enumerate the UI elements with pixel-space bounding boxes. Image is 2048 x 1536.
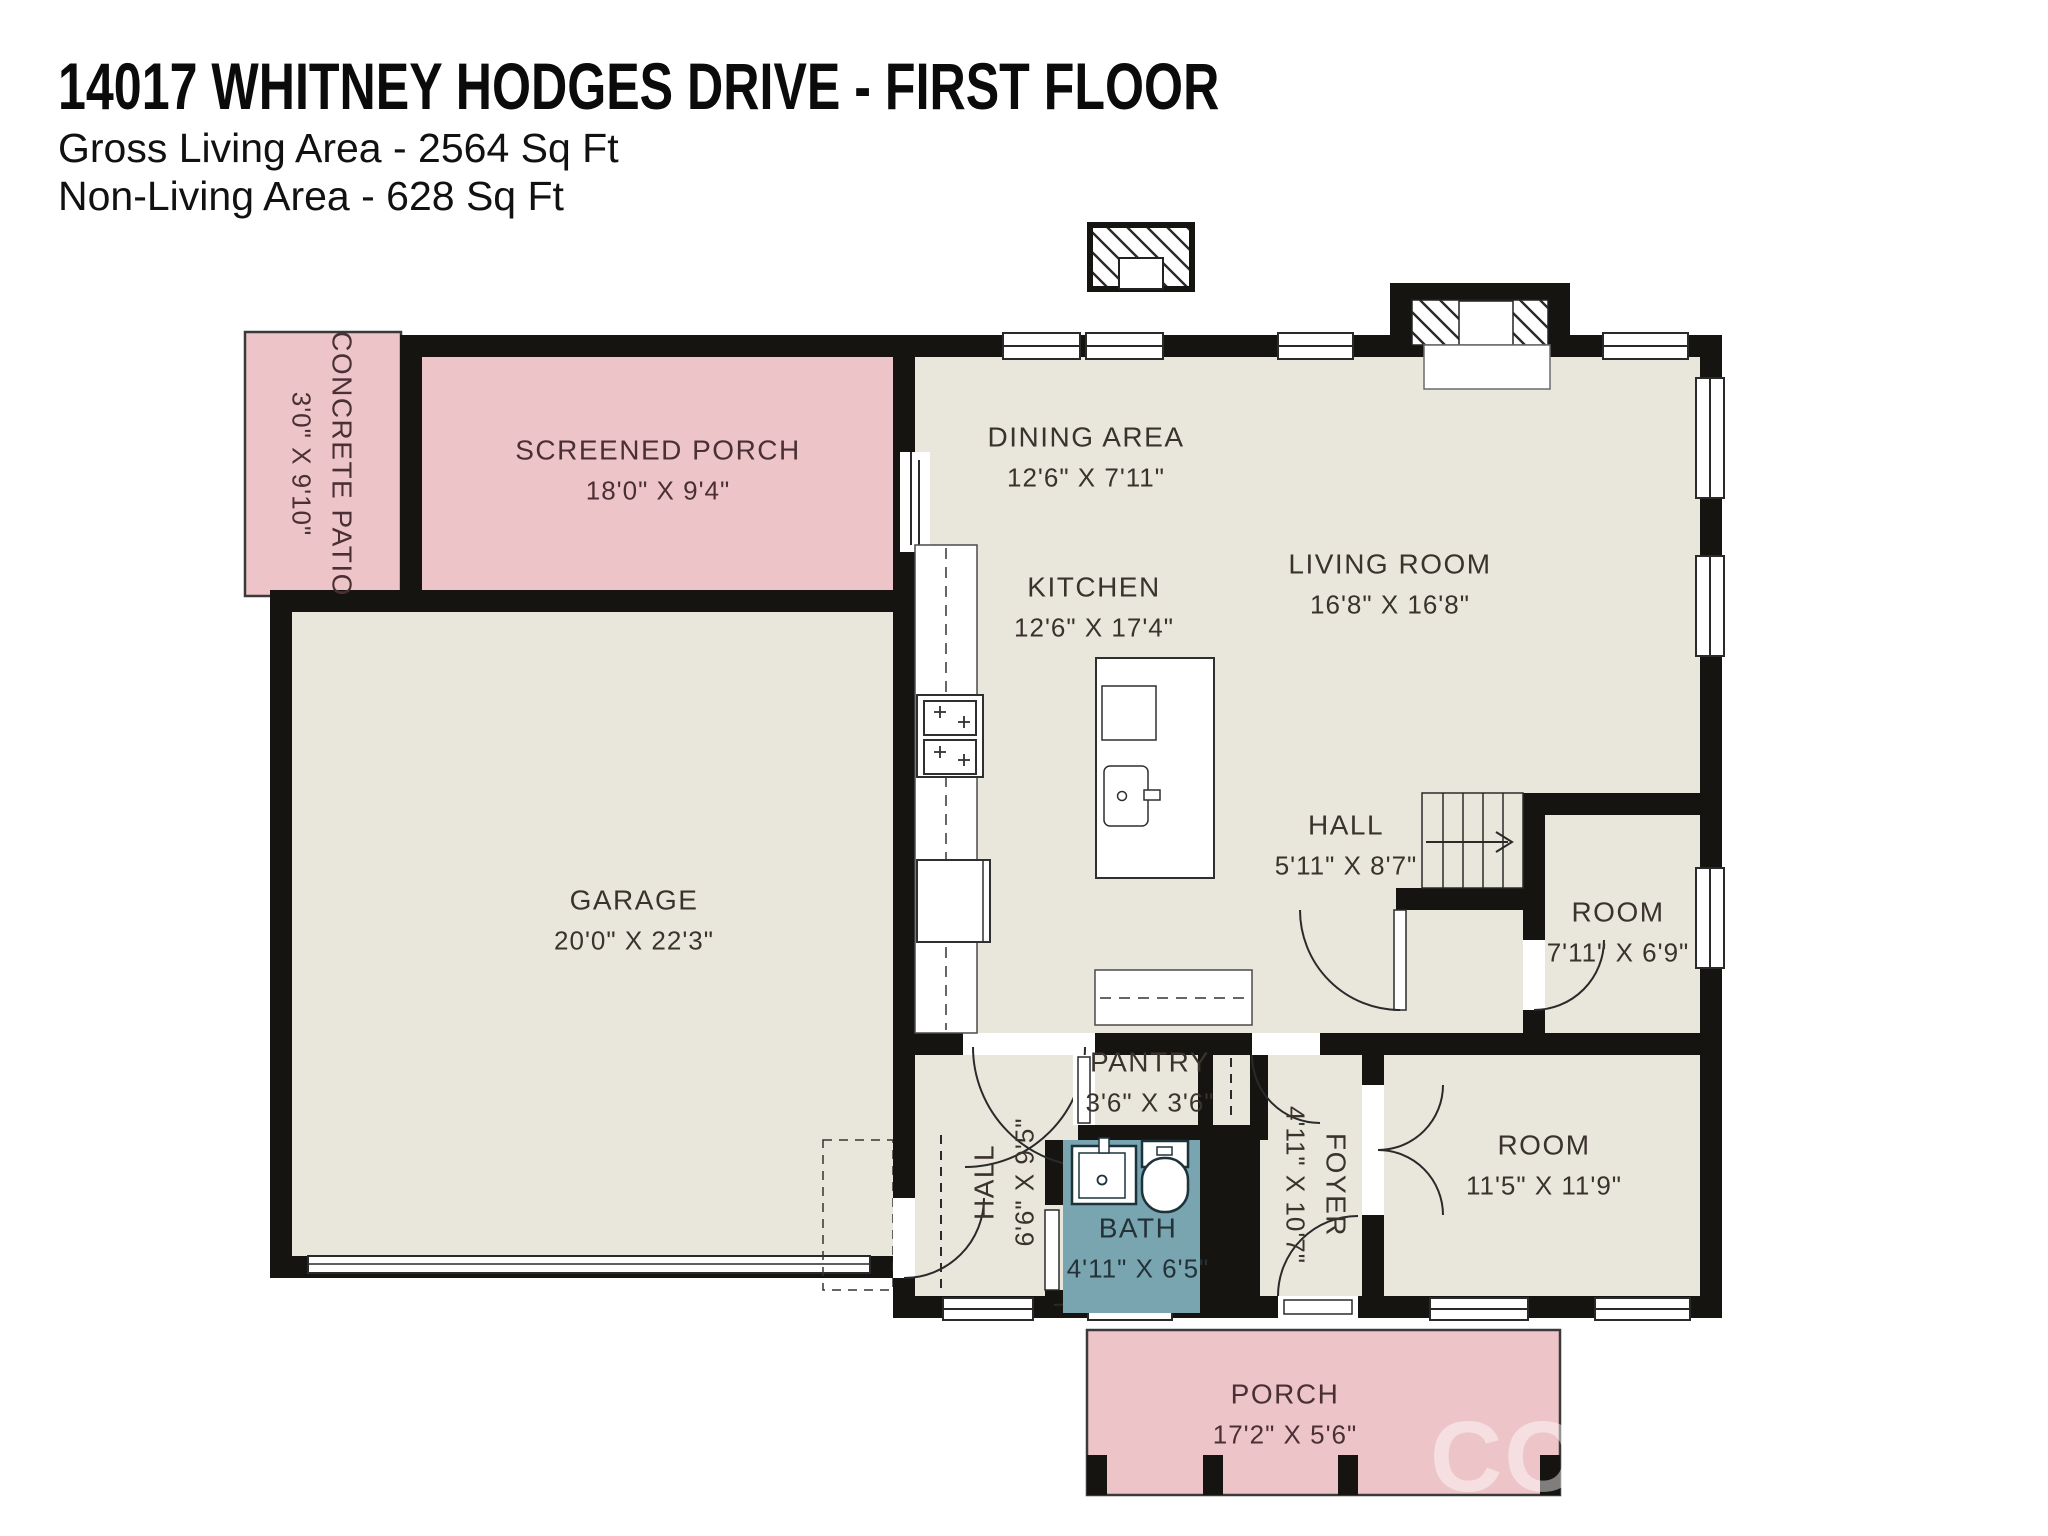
non-living-area-text: Non-Living Area - 628 Sq Ft <box>58 174 1586 220</box>
label-porch: PORCH 17'2" X 5'6" <box>1213 1374 1357 1455</box>
floor-plan: 14017 WHITNEY HODGES DRIVE - FIRST FLOOR… <box>0 0 2048 1536</box>
porch-post <box>1338 1455 1358 1495</box>
label-room-small: ROOM 7'11" X 6'9" <box>1547 892 1690 973</box>
fireplace-hearth <box>1424 345 1550 389</box>
chimney <box>1090 225 1192 289</box>
watermark: CO <box>1430 1400 1584 1515</box>
label-foyer: FOYER 4'11" X 10'7" <box>1276 1106 1357 1264</box>
porch-slider-door <box>900 452 930 552</box>
plan-title: 14017 WHITNEY HODGES DRIVE - FIRST FLOOR <box>58 48 1219 124</box>
kitchen-counter <box>915 545 977 1033</box>
label-bath: BATH 4'11" X 6'5" <box>1067 1208 1210 1289</box>
refrigerator <box>917 860 990 942</box>
label-concrete-patio: CONCRETE PATIO 3'0" X 9'10" <box>282 331 363 597</box>
range-stove <box>917 695 983 777</box>
label-pantry: PANTRY 3'6" X 3'6" <box>1085 1042 1214 1123</box>
staircase <box>1422 793 1523 888</box>
kitchen-island <box>1096 658 1214 878</box>
label-hall-upper: HALL 5'11" X 8'7" <box>1275 805 1418 886</box>
kitchen-counter-south <box>1095 970 1252 1025</box>
label-room-bottom: ROOM 11'5" X 11'9" <box>1466 1125 1622 1206</box>
label-dining-area: DINING AREA 12'6" X 7'11" <box>988 417 1185 498</box>
bath-vanity-sink <box>1072 1138 1136 1204</box>
porch-post <box>1087 1455 1107 1495</box>
label-hall-lower: HALL 6'6" X 9'5" <box>964 1117 1045 1246</box>
gross-living-area-text: Gross Living Area - 2564 Sq Ft <box>58 126 1586 172</box>
toilet <box>1142 1141 1188 1212</box>
label-garage: GARAGE 20'0" X 22'3" <box>554 880 714 961</box>
island-cooktop <box>1102 686 1156 740</box>
label-kitchen: KITCHEN 12'6" X 17'4" <box>1014 567 1174 648</box>
porch-post <box>1203 1455 1223 1495</box>
floor-plan-geometry <box>0 0 2048 1536</box>
label-screened-porch: SCREENED PORCH 18'0" X 9'4" <box>515 430 800 511</box>
label-living-room: LIVING ROOM 16'8" X 16'8" <box>1288 544 1491 625</box>
plan-header: 14017 WHITNEY HODGES DRIVE - FIRST FLOOR… <box>58 48 1586 220</box>
